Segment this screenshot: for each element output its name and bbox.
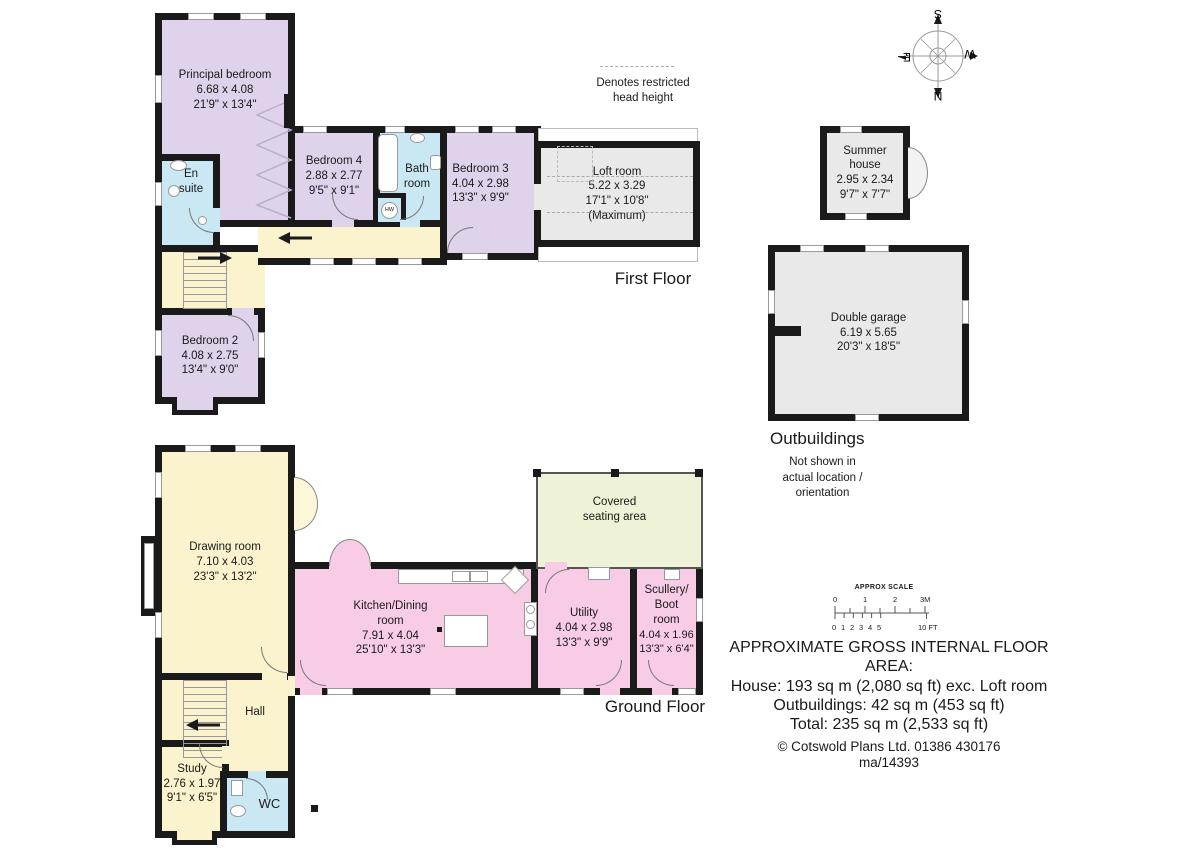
room-dim-imperial: 13'3" x 9'9": [452, 191, 509, 206]
hw-cylinder-icon: HW: [381, 202, 398, 219]
post: [311, 805, 318, 812]
summary-total: Total: 235 sq m (2,533 sq ft): [710, 715, 1068, 734]
arrow-up-icon: [196, 252, 232, 264]
room-dim-metric: 2.76 x 1.97: [164, 777, 221, 792]
scale-m-2: 2: [893, 595, 897, 604]
door-gap: [447, 220, 469, 227]
door-leaf: [908, 173, 928, 199]
garage-wall-stub: [775, 326, 801, 336]
room-dim-metric: 4.04 x 1.96: [639, 628, 693, 642]
room-dim-metric: 2.88 x 2.77: [306, 169, 363, 184]
outbuildings-note-line3: orientation: [760, 486, 885, 502]
window: [185, 445, 211, 452]
scale-title: APPROX SCALE: [828, 584, 940, 591]
restricted-note-line2: head height: [578, 91, 708, 106]
room-dim-imperial: 20'3" x 18'5": [831, 340, 906, 355]
ground-floor-label: Ground Floor: [590, 697, 720, 717]
room-dim-metric: 4.04 x 2.98: [556, 621, 613, 636]
room-name: Summer: [837, 144, 894, 159]
floor-area-summary: APPROXIMATE GROSS INTERNAL FLOOR AREA: H…: [710, 638, 1068, 771]
window: [303, 126, 327, 133]
room-dim-metric: 7.10 x 4.03: [189, 555, 261, 570]
door-gap: [545, 562, 567, 569]
room-name: room: [353, 614, 427, 629]
window: [310, 258, 334, 265]
window: [327, 688, 353, 695]
toilet-icon: [230, 805, 246, 817]
window: [155, 330, 162, 356]
door-leaf: [329, 539, 350, 566]
window: [398, 258, 422, 265]
window: [962, 300, 969, 324]
room-name: Bedroom 3: [452, 162, 509, 177]
sink-icon: [664, 569, 680, 580]
compass-east: E: [903, 50, 911, 64]
room-drawing-room: Drawing room 7.10 x 4.03 23'3" x 13'2": [155, 445, 295, 680]
room-label: Loft room 5.22 x 3.29 17'1" x 10'8" (Max…: [585, 165, 648, 224]
kitchen-island: [444, 615, 488, 647]
door-gap: [213, 208, 220, 232]
scale-bar: APPROX SCALE 0 1 2 3M 0 1 2 3 4 5 10 FT: [828, 584, 940, 638]
sink-icon: [588, 567, 610, 580]
scale-ft-2: 2: [850, 623, 854, 632]
restricted-note: Denotes restricted head height: [578, 76, 708, 106]
floor-plan-canvas: Principal bedroom 6.68 x 4.08 21'9" x 13…: [0, 0, 1200, 848]
room-bedroom-4: Bedroom 4 2.88 x 2.77 9'5" x 9'1": [288, 126, 380, 227]
door-gap: [262, 673, 287, 680]
window: [855, 414, 879, 421]
room-name: Scullery/: [639, 583, 693, 598]
toilet-icon: [170, 160, 187, 171]
room-name: Principal bedroom: [179, 68, 272, 83]
sink-icon: [452, 571, 470, 582]
compass-north: N: [934, 89, 943, 102]
room-name: Hall: [245, 705, 265, 720]
arrow-up-icon: [186, 719, 222, 731]
door-gap: [600, 688, 620, 695]
post: [611, 469, 619, 477]
door-gap: [300, 688, 322, 695]
hw-label: HW: [385, 207, 394, 213]
scale-ft-4: 4: [868, 623, 872, 632]
room-dim-imperial: 13'3" x 9'9": [556, 636, 613, 651]
room-name: Utility: [556, 606, 613, 621]
window: [560, 688, 584, 695]
room-dim-metric: 7.91 x 4.04: [353, 629, 427, 644]
window: [455, 126, 479, 133]
window: [188, 13, 214, 20]
outbuildings-note: Not shown in actual location / orientati…: [760, 455, 885, 502]
room-label: Study 2.76 x 1.97 9'1" x 6'5": [164, 762, 221, 806]
post: [533, 469, 541, 477]
room-label: Double garage 6.19 x 5.65 20'3" x 18'5": [831, 311, 906, 355]
door-leaf: [908, 147, 928, 173]
scale-ft-0: 0: [832, 623, 836, 632]
window: [696, 598, 703, 622]
window: [352, 258, 376, 265]
outbuildings-title: Outbuildings: [770, 429, 900, 449]
door-gap: [222, 746, 229, 764]
room-dim-imperial: 13'3" x 6'4": [639, 642, 693, 656]
loft-door-gap: [534, 184, 541, 210]
summary-outbuildings: Outbuildings: 42 sq m (453 sq ft): [710, 696, 1068, 715]
scale-m-3: 3M: [920, 595, 930, 604]
toilet-icon: [410, 133, 425, 143]
oven-ring-icon: [526, 620, 535, 629]
room-bedroom-2: Bedroom 2 4.08 x 2.75 13'4" x 9'0": [155, 308, 265, 404]
scale-m-1: 1: [863, 595, 867, 604]
room-name: Double garage: [831, 311, 906, 326]
door-leaf: [294, 477, 318, 504]
room-dim-metric: 5.22 x 3.29: [585, 179, 648, 194]
room-dim-imperial: 23'3" x 13'2": [189, 570, 261, 585]
door-leaf: [294, 504, 318, 531]
bathtub-icon: [378, 134, 398, 192]
window: [155, 75, 162, 103]
compass-west: W: [964, 47, 976, 61]
room-label: Summer house 2.95 x 2.34 9'7" x 7'7": [837, 144, 894, 203]
window: [155, 182, 162, 206]
covered-seating-area: Covered seating area: [536, 472, 703, 569]
window: [678, 688, 696, 695]
room-dim-metric: 6.19 x 5.65: [831, 326, 906, 341]
room-dim-imperial: 9'1" x 6'5": [164, 791, 221, 806]
room-name: Kitchen/Dining: [353, 599, 427, 614]
window: [258, 332, 265, 358]
window: [845, 213, 867, 220]
room-dim-metric: 2.95 x 2.34: [837, 173, 894, 188]
window: [462, 253, 488, 260]
room-name: room: [639, 613, 693, 628]
window: [768, 290, 775, 314]
room-dim-metric: 6.68 x 4.08: [179, 83, 272, 98]
room-label: Bedroom 3 4.04 x 2.98 13'3" x 9'9": [452, 162, 509, 206]
scale-ft-3: 3: [859, 623, 863, 632]
door-gap: [288, 676, 295, 696]
restricted-note-line1: Denotes restricted: [578, 76, 708, 91]
room-dim-imperial: 17'1" x 10'8": [585, 194, 648, 209]
oven-ring-icon: [526, 605, 535, 614]
window: [385, 126, 405, 133]
window: [840, 126, 862, 133]
compass-icon: S N E W: [898, 8, 978, 102]
copyright-line: © Cotswold Plans Ltd. 01386 430176: [710, 739, 1068, 755]
room-dim-note: (Maximum): [585, 209, 648, 224]
door-gap: [332, 220, 354, 227]
room-name: seating area: [583, 510, 646, 525]
window: [430, 688, 456, 695]
room-dim-metric: 4.04 x 2.98: [452, 177, 509, 192]
scale-m-0: 0: [833, 595, 837, 604]
room-label: Kitchen/Dining room 7.91 x 4.04 25'10" x…: [353, 599, 427, 658]
summary-title: APPROXIMATE GROSS INTERNAL FLOOR AREA:: [710, 638, 1068, 677]
scale-ft-10: 10 FT: [918, 623, 938, 632]
room-dim-imperial: 13'4" x 9'0": [182, 363, 239, 378]
window: [240, 13, 266, 20]
sink-icon: [231, 780, 243, 796]
window: [865, 245, 889, 252]
door-gap: [400, 220, 420, 227]
post: [437, 627, 442, 632]
restricted-height-line: [547, 212, 693, 213]
room-label: Drawing room 7.10 x 4.03 23'3" x 13'2": [189, 540, 261, 584]
room-dim-imperial: 9'7" x 7'7": [837, 188, 894, 203]
door-gap: [652, 688, 672, 695]
room-name: Loft room: [585, 165, 648, 180]
outbuildings-note-line2: actual location /: [760, 471, 885, 487]
window: [235, 445, 261, 452]
room-name: Bedroom 4: [306, 154, 363, 169]
room-label: Scullery/ Boot room 4.04 x 1.96 13'3" x …: [639, 583, 693, 655]
room-label: Bedroom 4 2.88 x 2.77 9'5" x 9'1": [306, 154, 363, 198]
bay-window: [172, 397, 218, 415]
door-gap: [248, 771, 266, 778]
room-label: Covered seating area: [583, 495, 646, 524]
outbuildings-note-line1: Not shown in: [760, 455, 885, 471]
window: [800, 245, 824, 252]
post: [695, 469, 703, 477]
scale-ft-5: 5: [877, 623, 881, 632]
room-name: Boot: [639, 598, 693, 613]
summary-house: House: 193 sq m (2,080 sq ft) exc. Loft …: [710, 677, 1068, 696]
door-leaf: [350, 539, 371, 566]
room-dim-metric: 4.08 x 2.75: [182, 349, 239, 364]
chimney-stub: [284, 94, 295, 128]
window: [492, 126, 516, 133]
room-dim-imperial: 25'10" x 13'3": [353, 643, 427, 658]
dashed-legend-sample: [600, 66, 674, 67]
room-name: house: [837, 158, 894, 173]
room-summer-house: Summer house 2.95 x 2.34 9'7" x 7'7": [820, 126, 910, 220]
compass-south: S: [934, 8, 942, 21]
first-floor-label: First Floor: [588, 269, 718, 289]
window: [155, 612, 162, 638]
reference-number: ma/14393: [710, 755, 1068, 771]
bay-window: [172, 831, 217, 845]
scale-ft-1: 1: [841, 623, 845, 632]
window: [155, 472, 162, 498]
restricted-height-hatch: [557, 146, 593, 182]
door-gap: [232, 308, 254, 315]
sink-icon: [430, 155, 441, 170]
room-en-suite: En suite: [155, 154, 220, 252]
room-name: Covered: [583, 495, 646, 510]
scale-ruler: [828, 606, 940, 620]
room-name: Drawing room: [189, 540, 261, 555]
room-label: Utility 4.04 x 2.98 13'3" x 9'9": [556, 606, 613, 650]
arrow-down-icon: [278, 232, 314, 244]
sink-icon: [168, 185, 180, 197]
fireplace-inset: [144, 543, 154, 609]
sink-icon: [470, 571, 488, 582]
